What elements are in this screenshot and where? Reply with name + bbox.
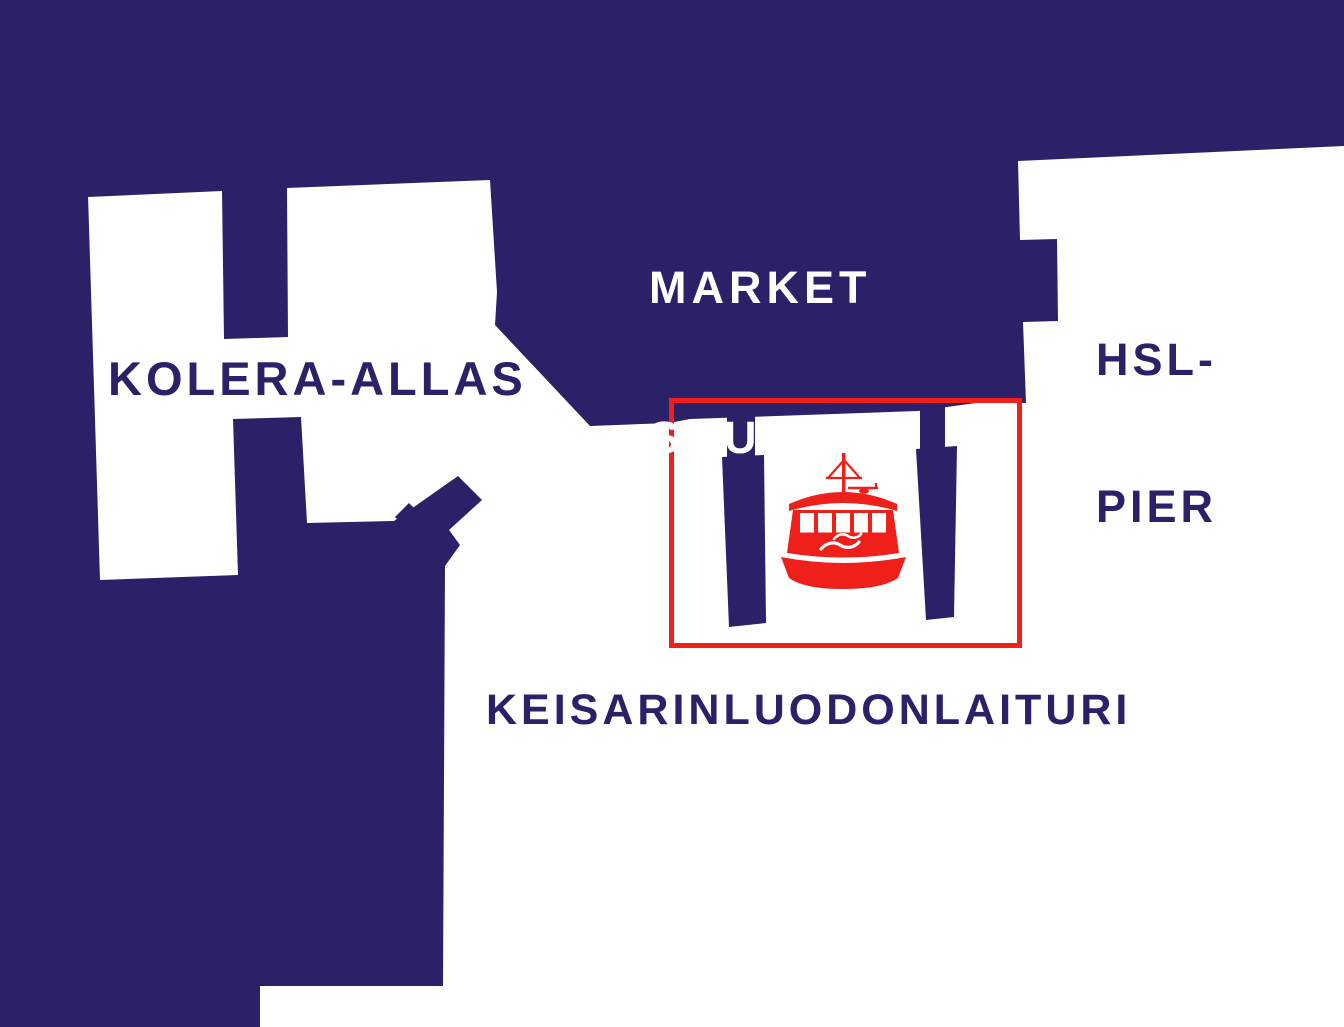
label-market-square-line2: SQUARE <box>649 413 872 463</box>
label-market-square: MARKET SQUARE <box>649 163 872 563</box>
label-hsl-pier: HSL- PIER <box>1096 237 1217 629</box>
label-hsl-pier-line2: PIER <box>1096 482 1217 531</box>
label-market-square-line1: MARKET <box>649 263 872 313</box>
label-kolera-allas: KOLERA-ALLAS <box>108 354 527 404</box>
pier-right <box>916 400 957 620</box>
label-keisarinluodonlaituri: KEISARINLUODONLAITURI <box>486 687 1131 733</box>
label-hsl-pier-line1: HSL- <box>1096 335 1217 384</box>
harbor-map: MARKET SQUARE HSL- PIER KOLERA-ALLAS KEI… <box>0 0 1344 1027</box>
